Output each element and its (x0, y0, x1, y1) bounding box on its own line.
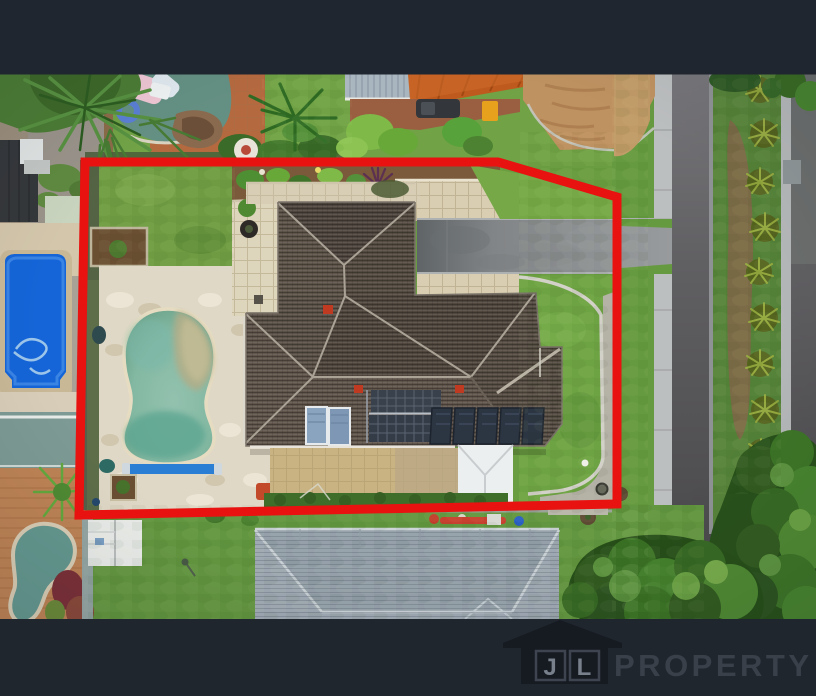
svg-text:L: L (577, 654, 592, 681)
svg-text:J: J (543, 654, 556, 681)
svg-text:PROPERTY: PROPERTY (614, 648, 813, 683)
